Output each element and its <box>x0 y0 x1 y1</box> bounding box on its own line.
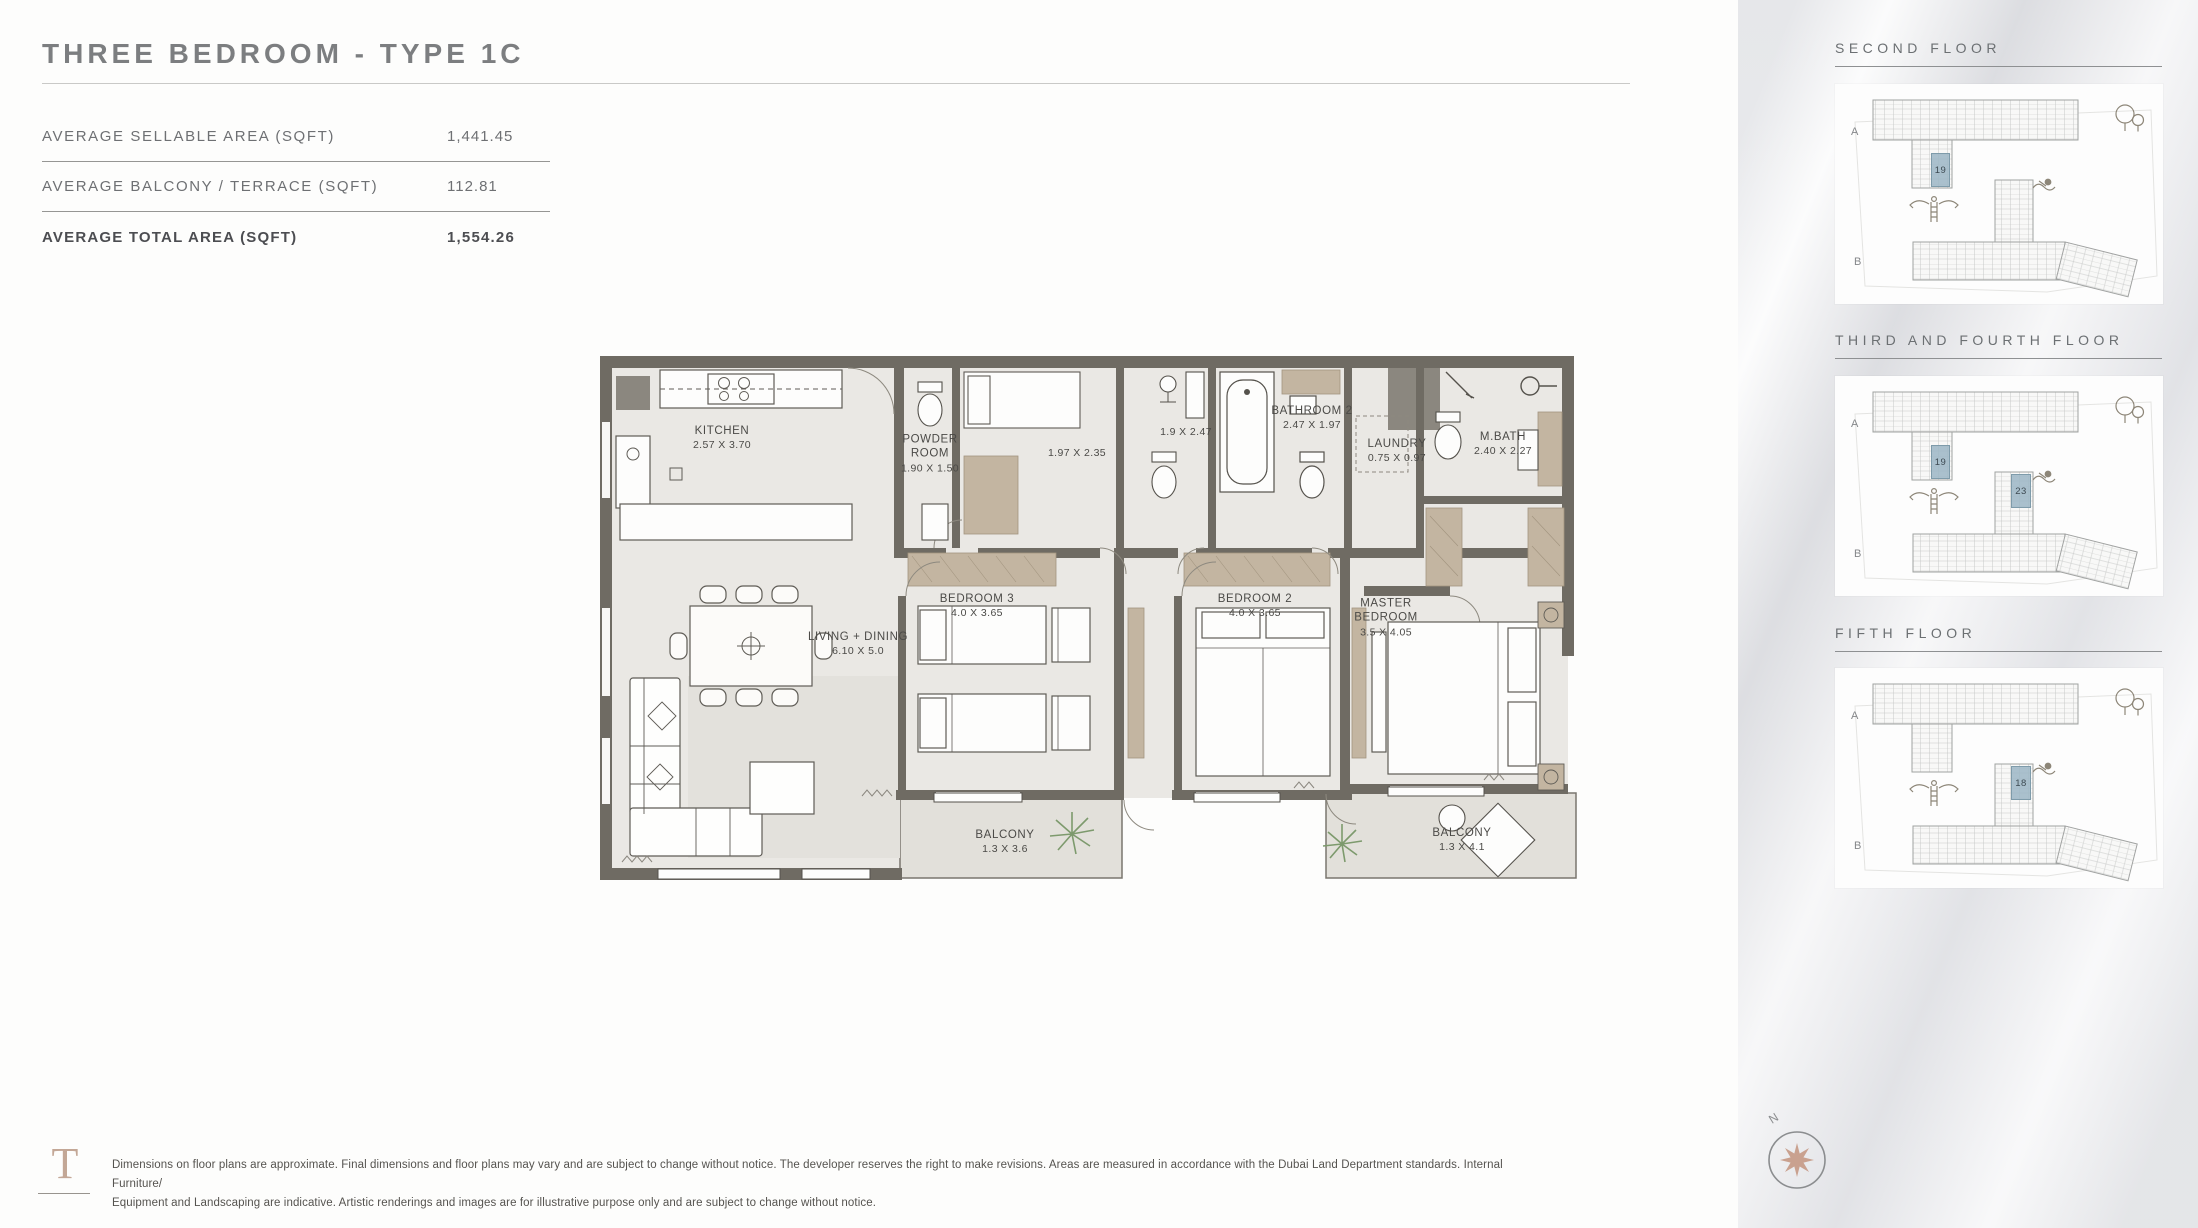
building-a-label: A <box>1851 418 1859 430</box>
section-title-third-fourth-floor: THIRD AND FOURTH FLOOR <box>1835 332 2124 348</box>
row-label: AVERAGE SELLABLE AREA (SQFT) <box>42 128 447 145</box>
section-rule <box>1835 651 2162 652</box>
compass-n-label: N <box>1766 1110 1781 1126</box>
floor-locator-sidebar: SECOND FLOOR A B 19 THIRD AND FOURTH FLO… <box>1738 0 2198 1228</box>
section-rule <box>1835 358 2162 359</box>
page-title: THREE BEDROOM - TYPE 1C <box>42 38 524 70</box>
building-b-label: B <box>1854 840 1862 852</box>
keyplan-map <box>1835 668 2163 888</box>
building-b-label: B <box>1854 256 1862 268</box>
floorplan-drawing <box>600 356 1580 886</box>
keyplan-map <box>1835 376 2163 596</box>
highlighted-unit-19: 19 <box>1931 445 1950 479</box>
north-compass: N <box>1752 1108 1842 1213</box>
keyplan-card-third-fourth-floor: A B 1923 <box>1835 376 2163 596</box>
row-value: 1,554.26 <box>447 229 515 246</box>
keyplan-card-second-floor: A B 19 <box>1835 84 2163 304</box>
keyplan-map <box>1835 84 2163 304</box>
disclaimer-line: Dimensions on floor plans are approximat… <box>112 1156 1542 1194</box>
developer-logo: T <box>40 1138 90 1189</box>
table-row: AVERAGE SELLABLE AREA (SQFT) 1,441.45 <box>42 112 550 162</box>
building-a-label: A <box>1851 710 1859 722</box>
section-title-second-floor: SECOND FLOOR <box>1835 40 2001 56</box>
row-label: AVERAGE BALCONY / TERRACE (SQFT) <box>42 178 447 195</box>
brochure-page: THREE BEDROOM - TYPE 1C AVERAGE SELLABLE… <box>0 0 2198 1228</box>
building-b-label: B <box>1854 548 1862 560</box>
highlighted-unit-18: 18 <box>2011 766 2031 800</box>
area-summary-table: AVERAGE SELLABLE AREA (SQFT) 1,441.45 AV… <box>42 112 550 262</box>
section-rule <box>1835 66 2162 67</box>
table-row: AVERAGE BALCONY / TERRACE (SQFT) 112.81 <box>42 162 550 212</box>
title-underline <box>42 83 1630 84</box>
compass-star <box>1780 1143 1814 1177</box>
table-row-total: AVERAGE TOTAL AREA (SQFT) 1,554.26 <box>42 212 550 262</box>
unit-floorplan: KITCHEN2.57 X 3.70POWDER ROOM1.90 X 1.50… <box>600 356 1580 886</box>
row-value: 1,441.45 <box>447 128 513 145</box>
building-a-label: A <box>1851 126 1859 138</box>
highlighted-unit-19: 19 <box>1931 153 1950 187</box>
section-title-fifth-floor: FIFTH FLOOR <box>1835 625 1976 641</box>
row-value: 112.81 <box>447 178 498 195</box>
disclaimer-text: Dimensions on floor plans are approximat… <box>112 1156 1542 1213</box>
highlighted-unit-23: 23 <box>2011 474 2031 508</box>
disclaimer-line: Equipment and Landscaping are indicative… <box>112 1194 1542 1213</box>
row-label: AVERAGE TOTAL AREA (SQFT) <box>42 229 447 246</box>
keyplan-card-fifth-floor: A B 18 <box>1835 668 2163 888</box>
logo-underline <box>38 1193 90 1194</box>
